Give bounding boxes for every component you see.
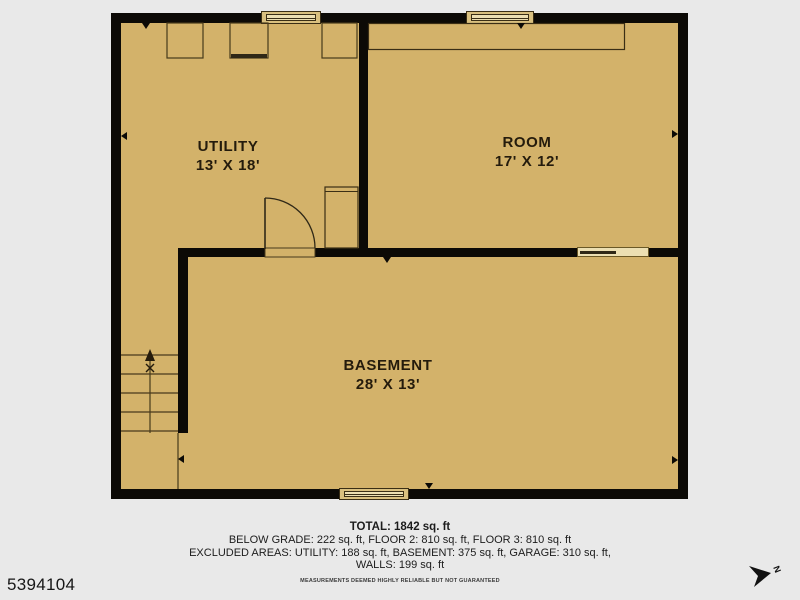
floorplan-canvas: N UTILITY 13' X 18' ROOM 17' X 12' BASEM… xyxy=(0,0,800,600)
window-sash xyxy=(266,18,316,19)
room-name: ROOM xyxy=(437,133,617,152)
listing-id: 5394104 xyxy=(7,575,75,595)
room-dimensions: 28' X 13' xyxy=(298,375,478,394)
wall-basement-top-middle xyxy=(315,248,577,257)
below-grade-text: BELOW GRADE: 222 sq. ft, FLOOR 2: 810 sq… xyxy=(0,534,800,547)
excluded-areas-text: EXCLUDED AREAS: UTILITY: 188 sq. ft, BAS… xyxy=(0,547,800,560)
window-room-top xyxy=(466,11,534,24)
window-basement-bottom xyxy=(339,488,409,500)
wall-basement-top-left xyxy=(178,248,265,257)
label-utility: UTILITY 13' X 18' xyxy=(138,137,318,175)
wall-basement-top-right xyxy=(649,248,678,257)
slider-opening-room-basement xyxy=(577,247,649,257)
window-sash xyxy=(471,18,529,19)
label-basement: BASEMENT 28' X 13' xyxy=(298,356,478,394)
slider-leaf xyxy=(580,251,616,254)
label-room: ROOM 17' X 12' xyxy=(437,133,617,171)
total-area-text: TOTAL: 1842 sq. ft xyxy=(0,521,800,534)
walls-area-text: WALLS: 199 sq. ft xyxy=(0,559,800,572)
area-summary: TOTAL: 1842 sq. ft BELOW GRADE: 222 sq. … xyxy=(0,521,800,584)
disclaimer-text: MEASUREMENTS DEEMED HIGHLY RELIABLE BUT … xyxy=(0,578,800,584)
wall-stairwell xyxy=(178,248,188,433)
room-name: BASEMENT xyxy=(298,356,478,375)
window-utility-top xyxy=(261,11,321,24)
room-dimensions: 17' X 12' xyxy=(437,152,617,171)
room-dimensions: 13' X 18' xyxy=(138,156,318,175)
room-name: UTILITY xyxy=(138,137,318,156)
wall-utility-room-divider xyxy=(359,23,368,257)
window-sash xyxy=(344,494,404,495)
